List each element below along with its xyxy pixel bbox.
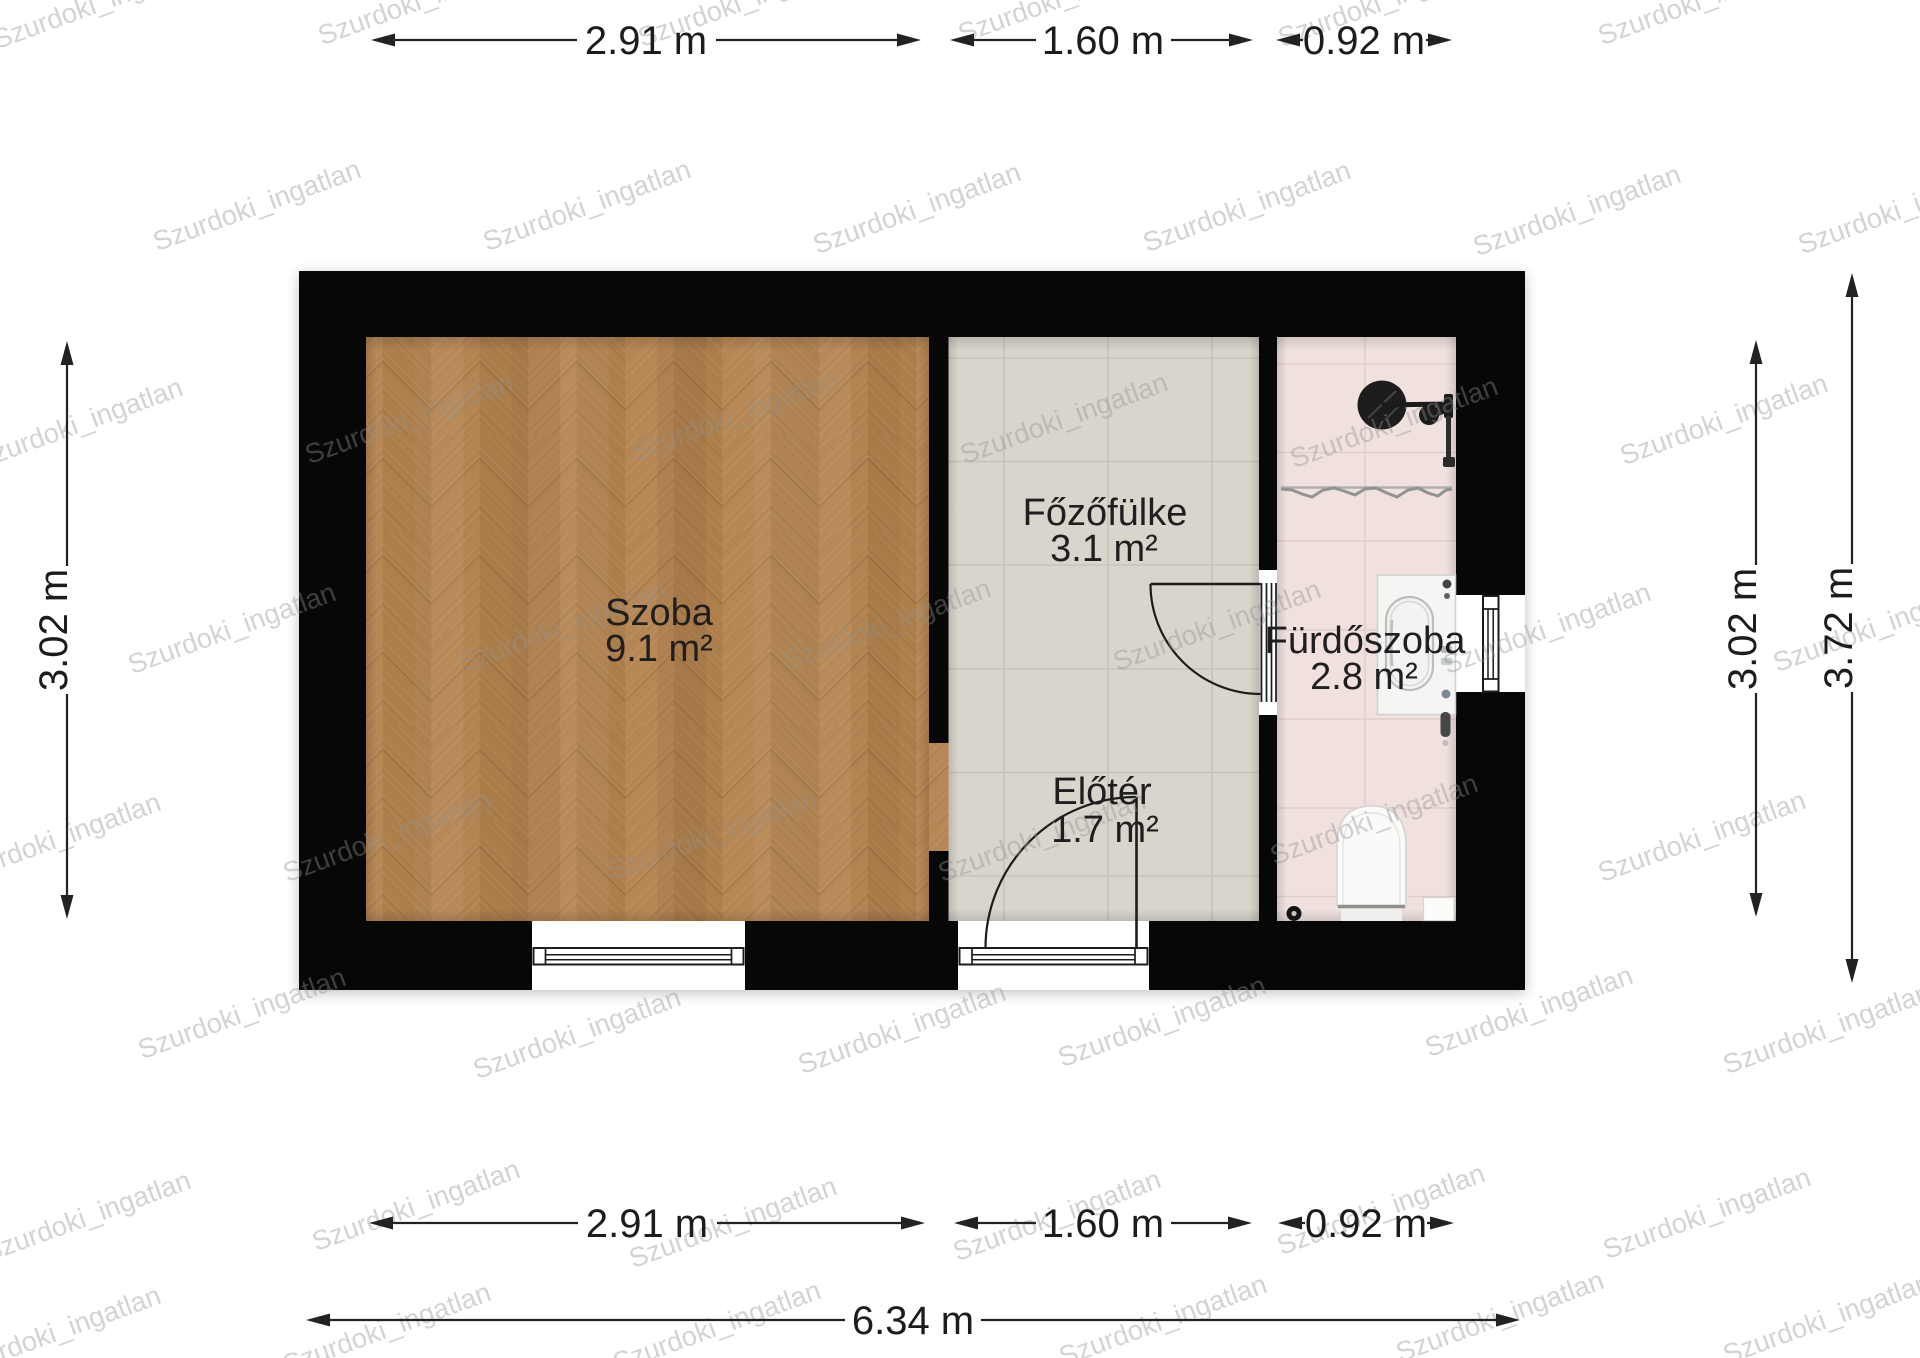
svg-text:1.60 m: 1.60 m (1042, 19, 1164, 63)
svg-text:0.92 m: 0.92 m (1305, 1202, 1427, 1246)
svg-text:3.1 m²: 3.1 m² (1050, 528, 1158, 570)
svg-text:3.72 m: 3.72 m (1817, 567, 1861, 689)
svg-text:0.92 m: 0.92 m (1303, 19, 1425, 63)
svg-text:2.91 m: 2.91 m (585, 19, 707, 63)
svg-text:9.1 m²: 9.1 m² (605, 628, 713, 670)
svg-text:3.02 m: 3.02 m (32, 569, 76, 691)
svg-text:3.02 m: 3.02 m (1721, 568, 1765, 690)
svg-text:2.91 m: 2.91 m (586, 1202, 708, 1246)
svg-text:Előtér: Előtér (1052, 771, 1152, 813)
svg-text:1.7 m²: 1.7 m² (1051, 809, 1159, 851)
svg-text:2.8 m²: 2.8 m² (1310, 656, 1418, 698)
svg-text:1.60 m: 1.60 m (1042, 1202, 1164, 1246)
svg-text:6.34 m: 6.34 m (852, 1299, 974, 1343)
